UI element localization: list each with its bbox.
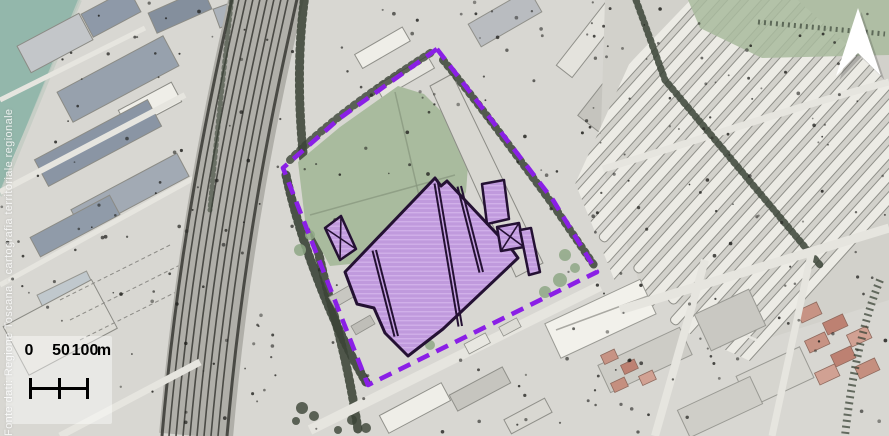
parcel-annex-x-building-right (497, 223, 524, 251)
north-arrow (826, 0, 889, 84)
scale-label-100: 100 (72, 342, 99, 360)
attribution-text: Fonte dati: Regione Toscana - cartografi… (3, 109, 15, 436)
north-arrow-icon (836, 8, 881, 76)
scale-tick (58, 378, 61, 399)
scale-bar: 0 50 100 m (6, 336, 112, 424)
scale-label-0: 0 (25, 342, 34, 360)
scale-tick (29, 378, 32, 399)
scale-label-50: 50 (52, 342, 70, 360)
aerial-basemap (0, 0, 889, 436)
scale-tick (86, 378, 89, 399)
scale-unit: m (97, 342, 111, 360)
parcel-annex-hatched (482, 180, 509, 224)
map-canvas: 0 50 100 m Fonte dati: Regione Toscana -… (0, 0, 889, 436)
